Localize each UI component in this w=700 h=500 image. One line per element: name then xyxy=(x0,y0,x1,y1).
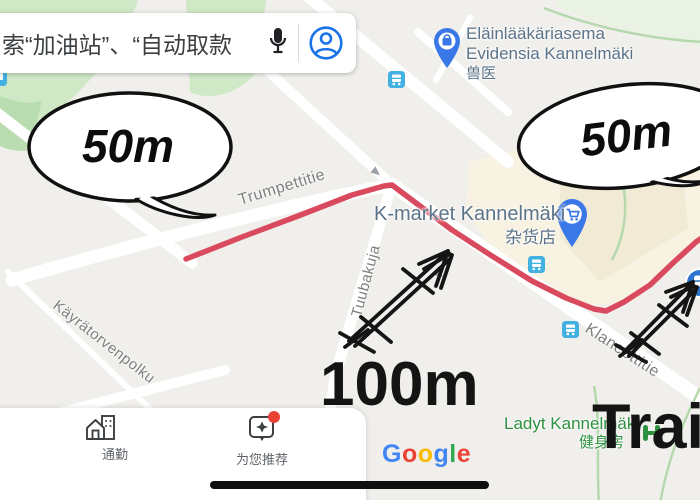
hand-drawn-underline xyxy=(210,481,489,489)
poi-kmarket-name: K-market Kannelmäki xyxy=(374,203,556,227)
account-icon[interactable] xyxy=(308,25,344,61)
bus-stop-icon[interactable] xyxy=(388,71,405,88)
google-letter: l xyxy=(449,440,456,468)
google-letter: o xyxy=(418,440,434,468)
google-letter: G xyxy=(382,440,402,468)
nav-item-recommended[interactable]: 为您推荐 xyxy=(217,414,307,468)
poi-label-vet[interactable]: Eläinlääkäriasema Evidensia Kannelmäki 兽… xyxy=(466,24,633,83)
bubble-left-distance: 50m xyxy=(82,119,174,173)
nav-item-commute[interactable]: 通勤 xyxy=(85,414,145,463)
maps-app-screen: Trumpettitie Tuubakuja Käyrätorvenpolku … xyxy=(0,0,700,500)
bus-stop-icon[interactable] xyxy=(528,256,545,273)
train-station-icon[interactable] xyxy=(683,266,700,300)
search-bar[interactable]: 索“加油站”、“自动取款 xyxy=(0,13,356,73)
notification-dot xyxy=(268,411,280,423)
commute-icon xyxy=(85,414,117,441)
bus-stop-icon[interactable] xyxy=(562,321,579,338)
mic-icon[interactable] xyxy=(265,24,291,62)
poi-kmarket-cn: 杂货店 xyxy=(374,228,556,248)
nav-commute-label: 通勤 xyxy=(85,444,145,463)
google-letter: e xyxy=(457,440,471,468)
google-logo: Google xyxy=(382,440,471,469)
google-letter: o xyxy=(402,440,418,468)
poi-vet-cn: 兽医 xyxy=(466,65,633,83)
google-letter: g xyxy=(434,440,450,468)
poi-vet-line1: Eläinlääkäriasema xyxy=(466,24,633,44)
bubble-right-distance: 50m xyxy=(577,103,675,168)
poi-label-kmarket[interactable]: K-market Kannelmäki 杂货店 xyxy=(374,203,556,248)
search-input[interactable]: 索“加油站”、“自动取款 xyxy=(0,26,265,60)
vet-pin-icon[interactable] xyxy=(432,26,462,70)
train-label: Trai xyxy=(592,398,700,458)
distance-100m-label: 100m xyxy=(320,356,479,415)
poi-vet-line2: Evidensia Kannelmäki xyxy=(466,44,633,64)
divider xyxy=(298,24,299,62)
nav-recommended-label: 为您推荐 xyxy=(217,449,307,468)
